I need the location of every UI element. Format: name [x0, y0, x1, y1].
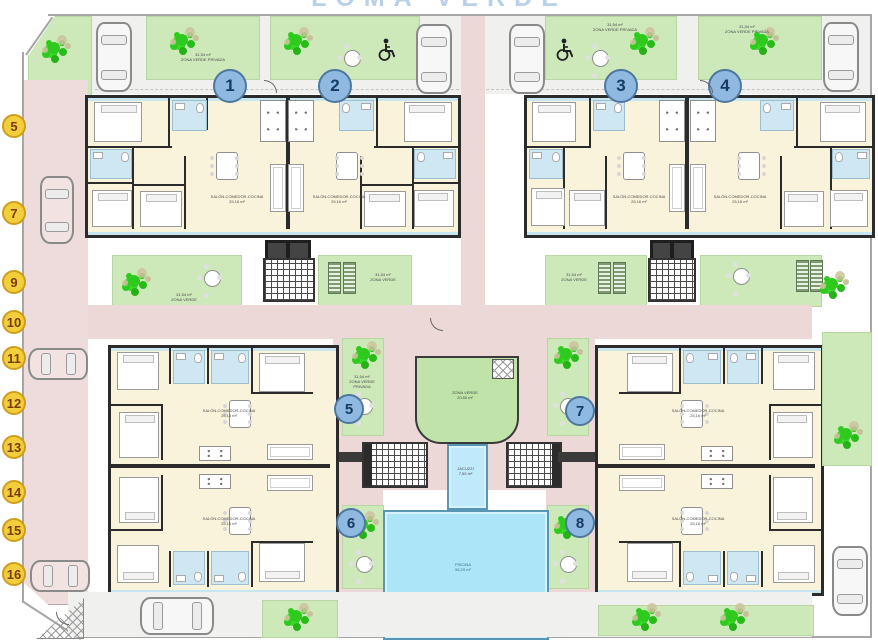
tree-icon	[560, 348, 572, 360]
sofa	[619, 444, 665, 460]
corridor-link	[558, 452, 595, 462]
unit-7-interior	[598, 348, 821, 464]
pool-area-text: 55,29 m²	[433, 567, 493, 572]
partition	[168, 98, 170, 148]
bed	[773, 545, 815, 583]
dining-table	[623, 152, 645, 180]
bed	[94, 102, 142, 142]
partition	[769, 406, 771, 460]
bed	[117, 352, 159, 390]
bathroom	[339, 100, 374, 131]
parking-stall-12	[24, 382, 88, 425]
sofa	[270, 164, 286, 212]
building-bottom-left: SALÓN-COMEDOR-COCINA 25,16 m² SALÓN-COME…	[108, 345, 339, 596]
bed	[820, 102, 866, 142]
living-label: SALÓN-COMEDOR-COCINA 25,16 m²	[179, 516, 279, 526]
tree-icon	[638, 610, 650, 622]
tree-icon	[290, 34, 302, 46]
unit-badge: 7	[565, 396, 595, 426]
bathroom	[529, 149, 563, 179]
kitchen	[199, 446, 231, 461]
partition	[769, 404, 821, 406]
sofa	[669, 164, 685, 212]
partition	[134, 184, 186, 186]
bed	[773, 412, 813, 458]
living-area-text: 25,16 m²	[648, 413, 748, 418]
bed	[773, 477, 813, 523]
tree-icon	[840, 428, 852, 440]
car	[96, 22, 132, 92]
partition	[161, 475, 163, 529]
living-area-text: 25,16 m²	[192, 199, 282, 204]
car	[509, 24, 545, 94]
living-area-text: 25,16 m²	[294, 199, 384, 204]
partition	[723, 551, 725, 587]
partition	[619, 392, 681, 394]
sun-lounger	[796, 260, 809, 292]
bathroom	[683, 350, 721, 384]
parking-stall-15	[24, 512, 88, 553]
patio-table	[560, 556, 577, 573]
sun-lounger	[598, 262, 611, 294]
partition	[169, 348, 171, 384]
partition	[161, 406, 163, 460]
kitchen	[260, 100, 286, 142]
partition	[679, 541, 681, 587]
kitchen	[288, 100, 314, 142]
partition	[769, 529, 821, 531]
sofa	[619, 475, 665, 491]
entry-road	[461, 16, 485, 310]
jacuzzi-label: JACUZZI 7,50 m²	[447, 466, 484, 476]
unit-badge: 4	[708, 69, 742, 103]
sofa	[267, 475, 313, 491]
tree-icon	[826, 278, 838, 290]
right-garden	[822, 332, 872, 466]
partition	[605, 156, 607, 229]
dining-table	[216, 152, 238, 180]
garden-name-text: ZONA VERDE PRIVADA	[168, 57, 238, 62]
bed	[140, 191, 182, 227]
dining-table	[336, 152, 358, 180]
parking-stall-10	[24, 300, 88, 341]
bathroom	[760, 100, 794, 131]
living-area-text: 25,16 m²	[648, 521, 748, 526]
bed	[92, 190, 132, 227]
bed	[119, 412, 159, 458]
partition	[376, 98, 378, 148]
bed	[414, 190, 454, 227]
unit-6-interior	[111, 471, 336, 587]
bathroom	[727, 551, 759, 585]
partition	[132, 148, 134, 229]
partition	[251, 392, 313, 394]
garden-name-text: ZONA VERDE PRIVADA	[344, 379, 380, 389]
bathroom	[683, 551, 721, 585]
sofa	[690, 164, 706, 212]
sun-lounger	[810, 260, 823, 292]
site-plan: LOMA VERDE 31,54 m² ZONA VERDE PRIVADA 3…	[0, 0, 878, 640]
garden-name-text: ZONA VERDE PRIVADA	[712, 29, 782, 34]
bed	[627, 353, 673, 392]
living-label: SALÓN-COMEDOR-COCINA 25,16 m²	[695, 194, 785, 204]
terrace-label: 31,54 m² ZONA VERDE	[152, 292, 216, 302]
parking-badge: 12	[2, 391, 26, 415]
partition	[88, 182, 132, 184]
wheelchair-icon	[378, 38, 395, 62]
pool-label: PISCINA 55,29 m²	[433, 562, 493, 572]
patio-table	[733, 268, 750, 285]
parking-badge: 15	[2, 518, 26, 542]
bathroom	[414, 149, 456, 179]
jacuzzi	[447, 444, 488, 510]
bed	[531, 188, 565, 226]
living-label: SALÓN-COMEDOR-COCINA 25,16 m²	[179, 408, 279, 418]
partition	[184, 156, 186, 229]
bed	[119, 477, 159, 523]
staircase	[506, 442, 562, 488]
party-wall	[111, 464, 330, 468]
partition	[589, 98, 591, 148]
partition	[207, 348, 209, 384]
car	[832, 546, 868, 616]
staircase	[648, 258, 696, 302]
unit-2-interior	[290, 98, 458, 235]
partition	[111, 404, 163, 406]
staircase	[263, 258, 315, 302]
wheelchair-icon	[556, 38, 573, 62]
living-area-text: 25,16 m²	[599, 199, 679, 204]
partition	[679, 348, 681, 394]
unit-5-interior	[111, 348, 336, 464]
partition	[761, 348, 763, 384]
kitchen	[690, 100, 716, 142]
bed	[532, 102, 576, 142]
parking-badge: 14	[2, 480, 26, 504]
patio-table	[592, 50, 609, 67]
partition	[723, 348, 725, 384]
parking-badge: 7	[2, 201, 26, 225]
parking-stall-14	[24, 468, 88, 513]
tree-icon	[358, 348, 370, 360]
living-label: SALÓN-COMEDOR-COCINA 25,16 m²	[648, 516, 748, 526]
parking-stall-5	[24, 80, 88, 169]
central-green-label: ZONA VERDE 20,50 m²	[435, 390, 495, 400]
parking-stall-13	[24, 424, 88, 469]
unit-1-interior	[88, 98, 286, 235]
garden-label: 31,54 m² ZONA VERDE PRIVADA	[580, 22, 650, 32]
kitchen	[701, 474, 733, 489]
partition	[527, 146, 591, 148]
parking-badge: 16	[2, 562, 26, 586]
partition	[796, 98, 798, 148]
terrace-label: 31,54 m² ZONA VERDE	[360, 272, 406, 282]
sofa	[288, 164, 304, 212]
partition	[251, 541, 253, 587]
bed	[404, 102, 452, 142]
living-area-text: 25,16 m²	[179, 521, 279, 526]
car	[28, 348, 88, 380]
bed	[627, 543, 673, 582]
partition	[207, 551, 209, 587]
living-label: SALÓN-COMEDOR-COCINA 25,16 m²	[294, 194, 384, 204]
staircase	[362, 442, 428, 488]
car	[40, 176, 74, 244]
bed	[784, 191, 824, 227]
tree-icon	[756, 34, 768, 46]
garden-name-text: ZONA VERDE	[552, 277, 596, 282]
page-title: LOMA VERDE	[0, 0, 878, 13]
bed	[117, 545, 159, 583]
parking-badge: 13	[2, 435, 26, 459]
building-top-right: SALÓN-COMEDOR-COCINA 25,16 m² SALÓN-COME…	[524, 95, 875, 238]
living-label: SALÓN-COMEDOR-COCINA 25,16 m²	[192, 194, 282, 204]
kitchen	[199, 474, 231, 489]
sun-lounger	[343, 262, 356, 294]
jacuzzi-area-text: 7,50 m²	[447, 471, 484, 476]
unit-badge: 2	[318, 69, 352, 103]
garden-name-text: ZONA VERDE PRIVADA	[580, 27, 650, 32]
partition	[769, 475, 771, 529]
tree-icon	[726, 610, 738, 622]
car	[140, 597, 214, 635]
tree-icon	[636, 34, 648, 46]
patio-table	[344, 50, 361, 67]
bathroom	[211, 551, 249, 585]
dining-table	[738, 152, 760, 180]
unit-4-interior	[689, 98, 872, 235]
planter-box	[492, 359, 514, 379]
partition	[360, 156, 362, 229]
bathroom	[173, 350, 205, 384]
tree-icon	[290, 610, 302, 622]
bathroom	[90, 149, 132, 179]
bottom-garden-strip	[598, 605, 814, 636]
building-top-left: SALÓN-COMEDOR-COCINA 25,16 m² SALÓN-COME…	[85, 95, 461, 238]
bathroom	[173, 551, 205, 585]
bathroom	[211, 350, 249, 384]
living-area-text: 25,16 m²	[695, 199, 785, 204]
partition	[88, 146, 172, 148]
partition	[414, 182, 458, 184]
tree-icon	[176, 34, 188, 46]
living-area-text: 25,16 m²	[179, 413, 279, 418]
garden-label: 31,54 m² ZONA VERDE PRIVADA	[344, 374, 380, 389]
partition	[111, 529, 163, 531]
partition	[169, 551, 171, 587]
unit-badge: 1	[213, 69, 247, 103]
kitchen	[659, 100, 685, 142]
car	[823, 22, 859, 92]
unit-badge: 8	[565, 508, 595, 538]
parking-badge: 5	[2, 114, 26, 138]
garden-name-text: ZONA VERDE	[152, 297, 216, 302]
building-bottom-right: SALÓN-COMEDOR-COCINA 25,16 m² SALÓN-COME…	[595, 345, 824, 596]
garden-unit-1	[146, 16, 260, 80]
unit-8-interior	[598, 471, 821, 587]
green-area-text: 20,50 m²	[435, 395, 495, 400]
partition	[780, 156, 782, 229]
sofa	[267, 444, 313, 460]
parking-badge: 11	[2, 346, 26, 370]
living-label: SALÓN-COMEDOR-COCINA 25,16 m²	[648, 408, 748, 418]
bathroom	[593, 100, 625, 131]
sun-lounger	[613, 262, 626, 294]
partition	[761, 551, 763, 587]
unit-badge: 5	[334, 394, 364, 424]
tree-icon	[128, 275, 140, 287]
bed	[259, 353, 305, 392]
patio-table	[356, 556, 373, 573]
bathroom	[832, 149, 870, 179]
garden-name-text: ZONA VERDE	[360, 277, 406, 282]
bed	[259, 543, 305, 582]
parking-badge: 10	[2, 310, 26, 334]
kitchen	[701, 446, 733, 461]
garden-unit-2	[270, 16, 420, 80]
partition	[251, 348, 253, 394]
unit-badge: 3	[604, 69, 638, 103]
bathroom	[172, 100, 207, 131]
parking-badge: 9	[2, 270, 26, 294]
car	[30, 560, 90, 592]
parking-stall-9	[24, 252, 88, 301]
partition	[360, 184, 412, 186]
garden-label: 31,54 m² ZONA VERDE PRIVADA	[712, 24, 782, 34]
living-label: SALÓN-COMEDOR-COCINA 25,16 m²	[599, 194, 679, 204]
party-wall	[598, 464, 815, 468]
bed	[773, 352, 815, 390]
partition	[794, 146, 872, 148]
unit-3-interior	[527, 98, 685, 235]
bed	[830, 190, 868, 227]
partition	[374, 146, 458, 148]
patio-table	[204, 270, 221, 287]
garden-label: 31,54 m² ZONA VERDE PRIVADA	[168, 52, 238, 62]
car	[416, 24, 452, 94]
terrace-label: 31,54 m² ZONA VERDE	[552, 272, 596, 282]
tree-icon	[48, 42, 60, 54]
unit-badge: 6	[336, 508, 366, 538]
sun-lounger	[328, 262, 341, 294]
bathroom	[727, 350, 759, 384]
